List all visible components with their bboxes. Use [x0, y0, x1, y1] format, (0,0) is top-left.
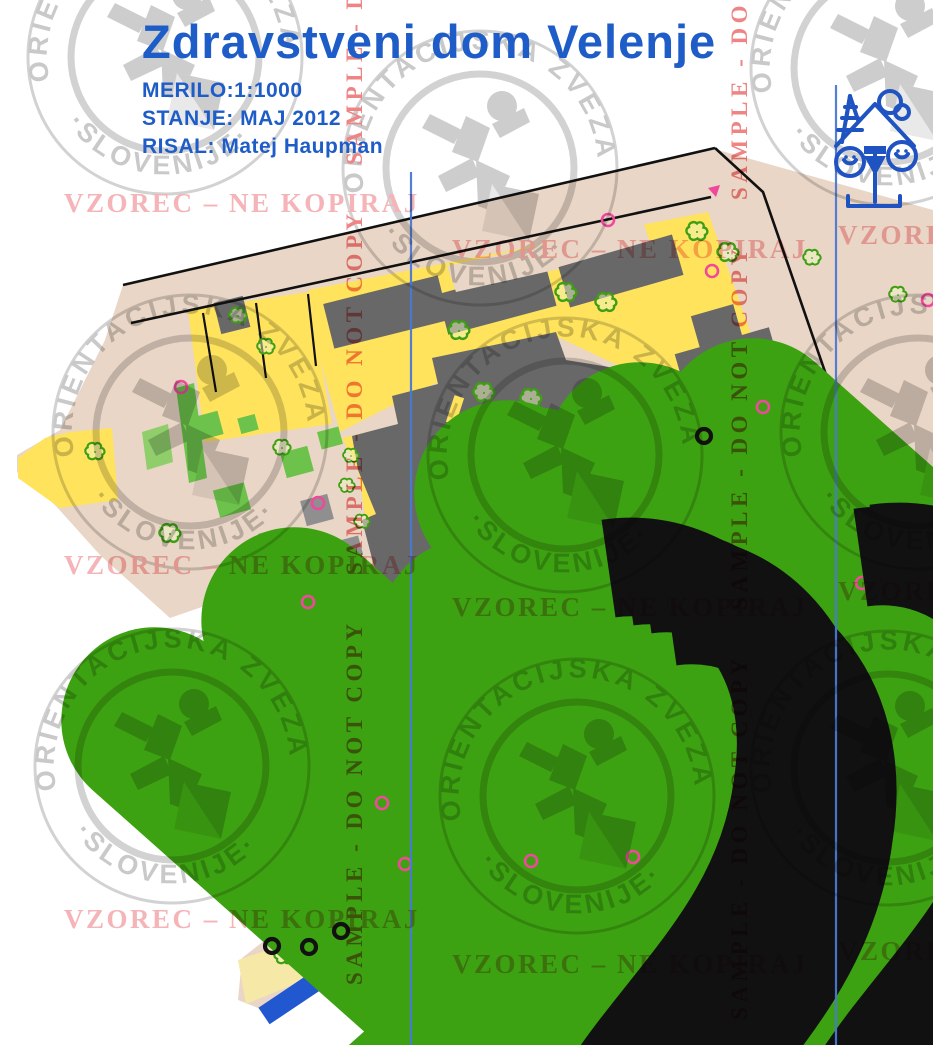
status-label: STANJE: MAJ 2012 — [142, 107, 716, 131]
map-title: Zdravstveni dom Velenje — [142, 14, 716, 69]
scale-label: MERILO:1:1000 — [142, 79, 716, 103]
author-label: RISAL: Matej Haupman — [142, 135, 716, 159]
cloud-icon — [879, 91, 901, 113]
map-header: Zdravstveni dom Velenje MERILO:1:1000 ST… — [142, 14, 716, 159]
map-sheet: ORIENTACIJSKA ZVEZA·SLOVENIJE·ORIENTACIJ… — [0, 0, 933, 1045]
flag-icon — [864, 156, 886, 176]
health-centre-kids-logo — [828, 80, 924, 212]
